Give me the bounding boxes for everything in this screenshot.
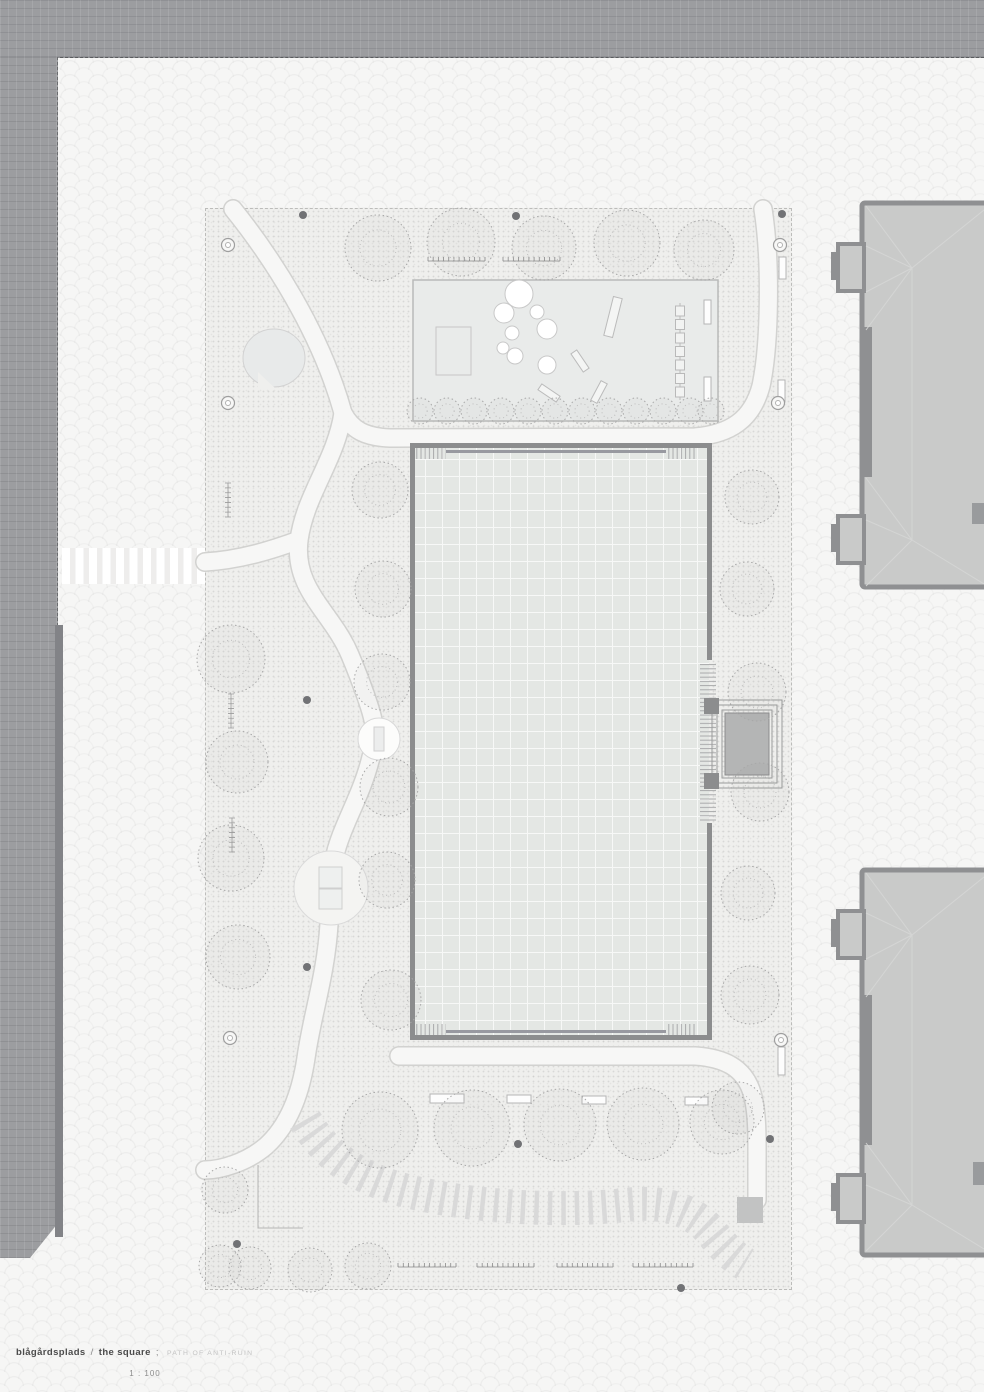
playground-slab bbox=[413, 280, 718, 421]
chain-step bbox=[676, 347, 685, 357]
chain-step bbox=[676, 306, 685, 316]
bollard-icon bbox=[512, 212, 520, 220]
building-block-south bbox=[831, 870, 984, 1255]
chain-step bbox=[676, 333, 685, 343]
tree-icon bbox=[515, 398, 541, 424]
tree-icon bbox=[206, 925, 270, 989]
tree-icon bbox=[206, 731, 268, 793]
stage-pillar bbox=[704, 698, 719, 714]
stair-tick-icon bbox=[228, 694, 234, 728]
bollard-icon bbox=[303, 696, 311, 704]
roof-hatch bbox=[972, 503, 984, 524]
tree-icon bbox=[461, 398, 487, 424]
lamp-icon-core bbox=[779, 1038, 784, 1043]
tree-icon bbox=[674, 220, 734, 280]
lamp-icon-core bbox=[228, 1036, 233, 1041]
tree-icon bbox=[720, 562, 774, 616]
sunken-square bbox=[410, 443, 716, 1040]
tree-icon bbox=[698, 398, 724, 424]
tree-icon bbox=[650, 398, 676, 424]
stair-tick-icon bbox=[225, 483, 231, 517]
tree-icon bbox=[542, 398, 568, 424]
site-plan-page: blågårdsplads / the square ; PATH OF ANT… bbox=[0, 0, 984, 1392]
bollard-icon bbox=[233, 1240, 241, 1248]
side-steps bbox=[700, 662, 716, 821]
tree-icon bbox=[728, 663, 786, 721]
chain-step bbox=[676, 360, 685, 370]
bench-icon bbox=[704, 377, 711, 401]
boulder-circle bbox=[537, 319, 557, 339]
playground-area bbox=[413, 280, 718, 421]
bay-window bbox=[838, 1175, 864, 1222]
tree-icon bbox=[721, 866, 775, 920]
ribbon-end-plate bbox=[737, 1197, 763, 1223]
lamp-icon-core bbox=[778, 243, 783, 248]
titleblock: blågårdsplads / the square ; PATH OF ANT… bbox=[16, 1347, 253, 1358]
corner-steps bbox=[666, 1024, 696, 1035]
lamp-icon-core bbox=[226, 243, 231, 248]
tree-icon bbox=[345, 215, 411, 281]
boulder-circle bbox=[530, 305, 544, 319]
bollard-icon bbox=[677, 1284, 685, 1292]
tree-icon bbox=[345, 1243, 391, 1289]
bike-rack-icon bbox=[557, 1263, 613, 1267]
tree-icon bbox=[596, 398, 622, 424]
bike-rack-icon bbox=[398, 1263, 456, 1267]
tree-icon bbox=[434, 398, 460, 424]
boulder-circle bbox=[505, 326, 519, 340]
lamp-icon-core bbox=[776, 401, 781, 406]
boulder-circle bbox=[507, 348, 523, 364]
corner-steps bbox=[666, 448, 696, 459]
wall-recess bbox=[860, 327, 872, 477]
square-floor bbox=[413, 446, 709, 1037]
title-separator: ; bbox=[156, 1347, 159, 1358]
bench-icon bbox=[704, 300, 711, 324]
tree-icon bbox=[607, 1088, 679, 1160]
tree-icon bbox=[361, 970, 421, 1030]
tree-icon bbox=[359, 852, 415, 908]
stage-pillar bbox=[704, 773, 719, 789]
corner-steps bbox=[416, 448, 446, 459]
tree-icon bbox=[288, 1248, 332, 1292]
fountain-circle bbox=[358, 718, 400, 760]
tree-icon bbox=[488, 398, 514, 424]
tree-icon bbox=[721, 966, 779, 1024]
tree-icon bbox=[202, 1167, 248, 1213]
tree-icon bbox=[198, 825, 264, 891]
building-block-north bbox=[831, 203, 984, 587]
tree-icon bbox=[229, 1247, 271, 1289]
tree-icon bbox=[725, 470, 779, 524]
bench-icon bbox=[779, 257, 786, 279]
bollard-icon bbox=[778, 210, 786, 218]
scale-label: 1 : 100 bbox=[110, 1369, 180, 1378]
site-plan-canvas bbox=[0, 0, 984, 1392]
tree-icon bbox=[407, 398, 433, 424]
title-divider: / bbox=[91, 1347, 94, 1358]
drawing-name: the square bbox=[99, 1347, 151, 1358]
bollard-icon bbox=[766, 1135, 774, 1143]
tree-icon bbox=[427, 208, 495, 276]
tree-icon bbox=[731, 763, 789, 821]
boulder-circle bbox=[538, 356, 556, 374]
bollard-icon bbox=[303, 963, 311, 971]
lamp-icon-core bbox=[226, 401, 231, 406]
tree-icon bbox=[524, 1089, 596, 1161]
boulder-circle bbox=[494, 303, 514, 323]
tree-icon bbox=[360, 758, 418, 816]
wall-recess bbox=[860, 995, 872, 1145]
roof-hatch bbox=[973, 1162, 984, 1185]
bay-window bbox=[838, 244, 864, 291]
chain-step bbox=[676, 374, 685, 384]
bench-icon bbox=[507, 1095, 531, 1103]
tree-icon bbox=[594, 210, 660, 276]
pond bbox=[243, 329, 305, 389]
tree-icon bbox=[354, 654, 410, 710]
bench-icon bbox=[778, 1047, 785, 1075]
tree-icon bbox=[355, 561, 411, 617]
boulder-circle bbox=[497, 342, 509, 354]
chain-step bbox=[676, 320, 685, 330]
drawing-tagline: PATH OF ANTI-RUIN bbox=[167, 1350, 253, 1357]
bay-window bbox=[838, 911, 864, 958]
activity-plaza bbox=[294, 851, 368, 925]
tree-icon bbox=[569, 398, 595, 424]
retaining-wall-corner bbox=[258, 1165, 303, 1228]
tree-icon bbox=[623, 398, 649, 424]
bollard-icon bbox=[514, 1140, 522, 1148]
bollard-icon bbox=[299, 211, 307, 219]
project-title: blågårdsplads bbox=[16, 1347, 86, 1358]
tree-icon bbox=[197, 625, 265, 693]
boulder-circle bbox=[505, 280, 533, 308]
tree-icon bbox=[342, 1092, 418, 1168]
chain-step bbox=[676, 387, 685, 397]
tree-icon bbox=[512, 216, 576, 280]
bay-window bbox=[838, 516, 864, 563]
bike-rack-icon bbox=[477, 1263, 534, 1267]
tree-icon bbox=[690, 1090, 754, 1154]
bike-rack-icon bbox=[633, 1263, 693, 1267]
tree-icon bbox=[434, 1090, 510, 1166]
corner-steps bbox=[416, 1024, 446, 1035]
tree-icon bbox=[352, 462, 408, 518]
